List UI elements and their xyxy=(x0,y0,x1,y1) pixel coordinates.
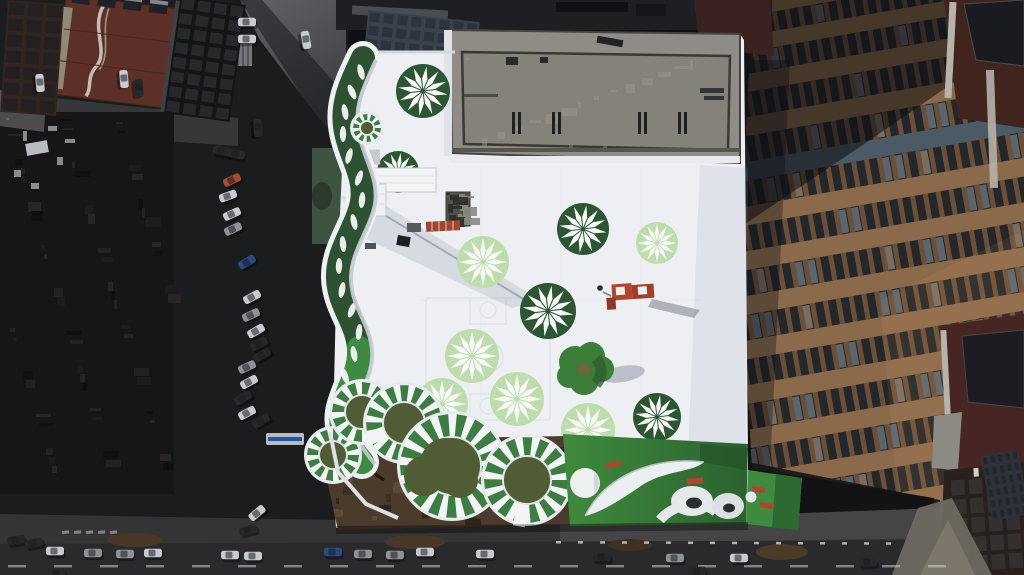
car xyxy=(688,567,708,575)
red-bench xyxy=(687,477,703,484)
car xyxy=(238,18,258,29)
tree-starburst-light xyxy=(457,236,509,288)
car xyxy=(250,119,263,139)
tree-starburst-light xyxy=(636,222,678,264)
car xyxy=(238,35,258,46)
car xyxy=(730,554,750,565)
roof-parapet-white xyxy=(450,156,740,163)
roof-pipe xyxy=(464,94,498,97)
east-green-patch xyxy=(746,470,803,530)
car xyxy=(476,550,496,561)
white-table xyxy=(746,492,757,503)
bench xyxy=(365,243,376,249)
car xyxy=(416,548,436,559)
lawn-tree xyxy=(312,182,332,210)
car xyxy=(116,70,129,90)
leaf xyxy=(340,126,346,142)
tree-starburst-light xyxy=(445,329,499,383)
climbing-frame xyxy=(426,220,460,232)
car xyxy=(84,549,104,560)
roof-pipes xyxy=(700,88,724,93)
grey-roof xyxy=(444,30,740,163)
bench xyxy=(407,223,421,232)
aerial-photo xyxy=(0,0,1024,575)
tree-starburst-dark xyxy=(396,64,450,118)
concrete-wall xyxy=(932,412,962,470)
car xyxy=(32,74,45,94)
tree-starburst-dark xyxy=(520,283,576,339)
patch-shade xyxy=(772,474,802,530)
person xyxy=(597,285,603,291)
car xyxy=(221,551,241,562)
tree-starburst-dark xyxy=(633,393,681,441)
roof-parapet-dark xyxy=(452,148,740,152)
play-canopy xyxy=(350,111,384,145)
northwest-building-windows xyxy=(0,0,64,116)
car xyxy=(859,558,879,569)
roof-vent xyxy=(556,2,628,12)
turf-playground xyxy=(563,434,748,526)
roof-vent xyxy=(636,4,666,16)
rooftop-plaza xyxy=(304,30,802,534)
car xyxy=(144,549,164,560)
tunnel-opening xyxy=(723,504,735,513)
old-building-roof xyxy=(0,112,174,494)
car xyxy=(354,550,374,561)
car xyxy=(666,554,686,565)
car xyxy=(244,552,264,563)
car xyxy=(46,547,66,558)
lane-markings xyxy=(8,565,946,567)
tree-starburst-light xyxy=(490,372,544,426)
car xyxy=(48,569,68,575)
tree-starburst-dark xyxy=(557,203,609,255)
southeast-black-roof xyxy=(962,330,1024,408)
roof-pipes xyxy=(704,96,724,100)
car xyxy=(131,79,144,99)
mound-bare-patch xyxy=(577,364,591,374)
car xyxy=(593,553,613,564)
tunnel-opening xyxy=(686,498,702,509)
car xyxy=(324,548,344,559)
roof-box xyxy=(540,57,548,63)
left-district xyxy=(0,0,348,575)
car xyxy=(386,551,406,562)
roof-box xyxy=(506,57,518,65)
car xyxy=(116,550,136,561)
blue-stripe-van xyxy=(266,433,304,445)
scene-svg xyxy=(0,0,1024,575)
